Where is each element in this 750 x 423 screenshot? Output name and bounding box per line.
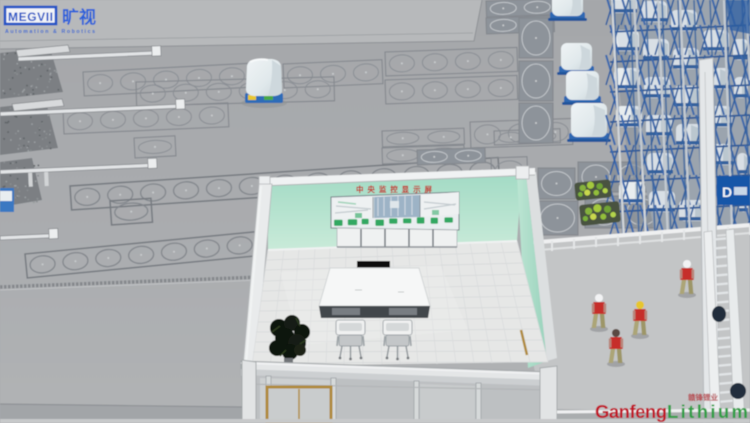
svg-text:Automation & Robotics: Automation & Robotics <box>5 29 95 35</box>
svg-text:D: D <box>722 184 732 200</box>
svg-text:旷视: 旷视 <box>62 7 96 27</box>
svg-text:MEGVII: MEGVII <box>8 10 53 24</box>
svg-text:Ganfeng: Ganfeng <box>595 401 667 422</box>
